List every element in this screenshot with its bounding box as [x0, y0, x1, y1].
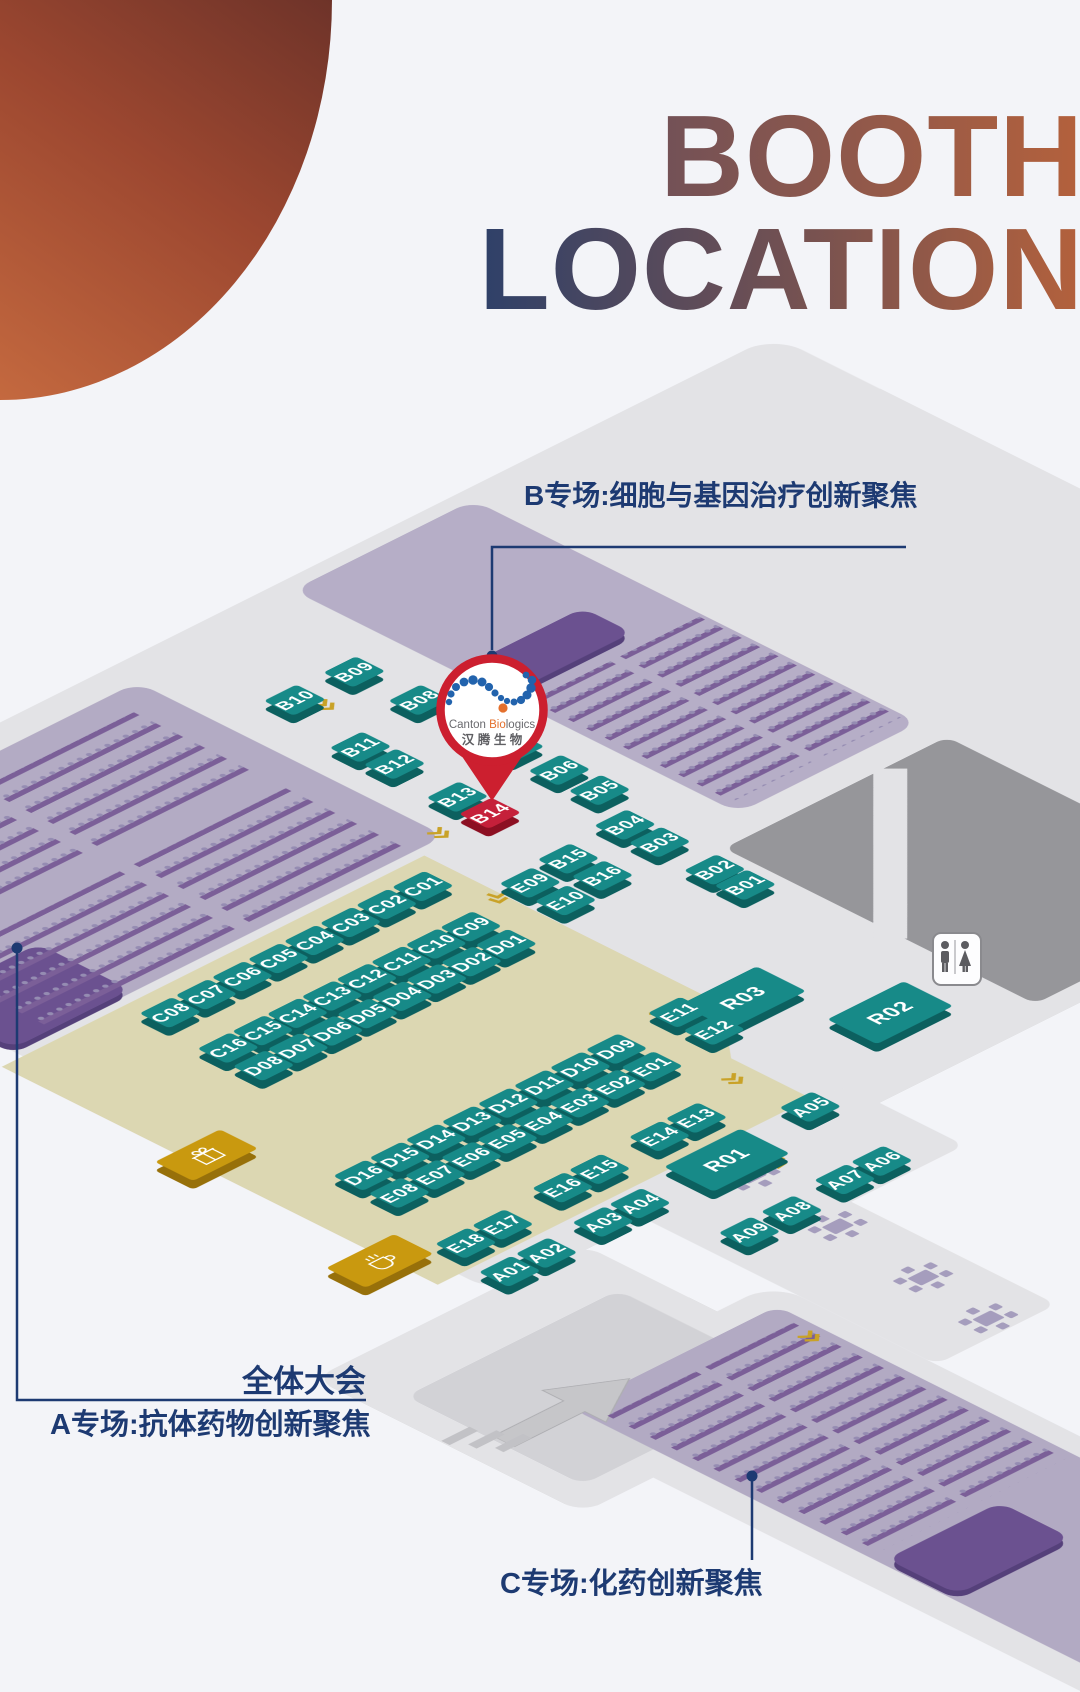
corner-blob: [0, 0, 332, 400]
title-line2: LOCATION: [479, 213, 1080, 326]
label-b-track: B专场:细胞与基因治疗创新聚焦: [524, 474, 918, 514]
restroom-icon: [932, 932, 982, 986]
label-plenary: 全体大会: [222, 1356, 366, 1401]
label-c-track: C专场:化药创新聚焦: [500, 1560, 763, 1602]
label-a-track: A专场:抗体药物创新聚焦: [50, 1401, 371, 1443]
booth-location-poster: B09B10B08B07B11B12B06B05B13B14B04B03B15B…: [0, 0, 1080, 1692]
page-title: BOOTH LOCATION: [479, 100, 1080, 325]
slab-corridor: [873, 769, 907, 939]
title-line1: BOOTH: [479, 100, 1080, 213]
